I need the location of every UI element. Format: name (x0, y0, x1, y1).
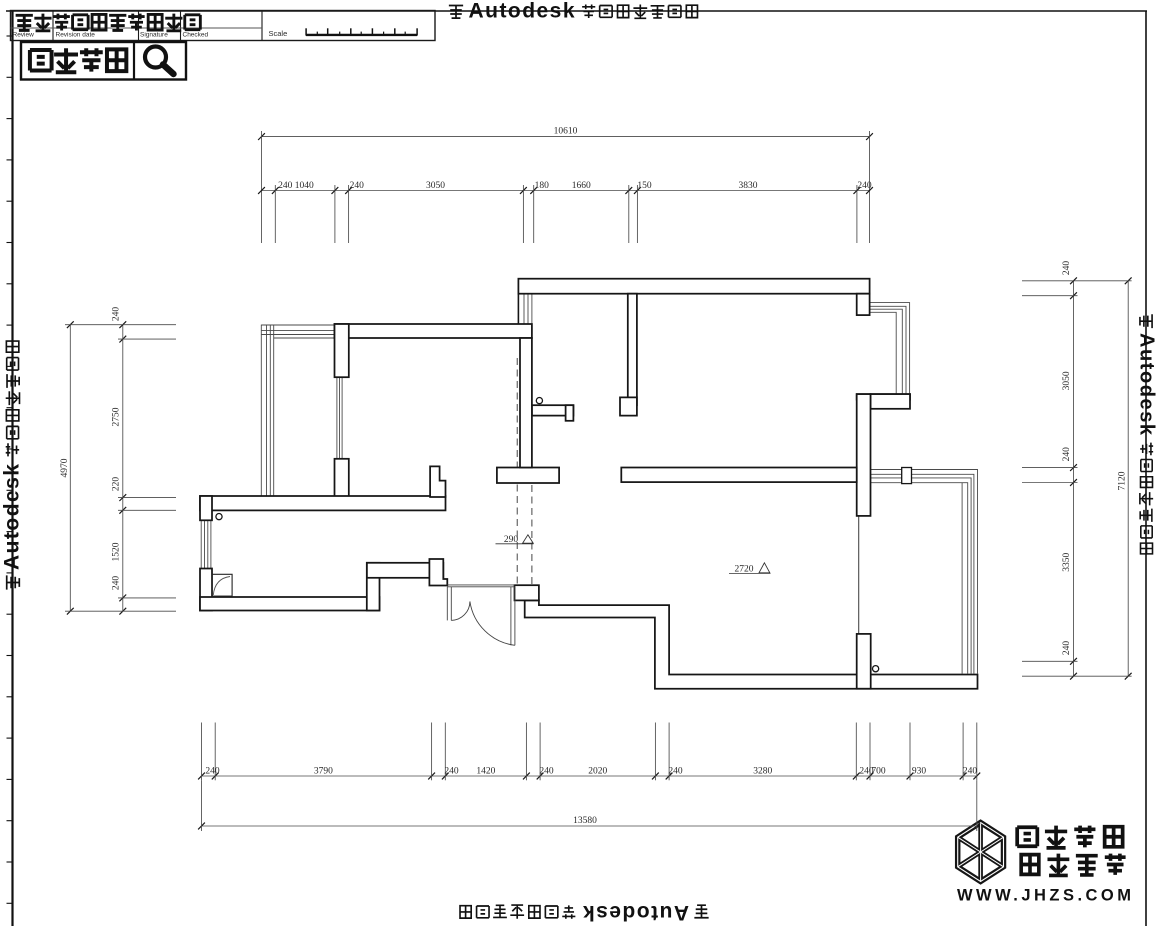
svg-text:240: 240 (444, 767, 459, 777)
svg-text:240: 240 (963, 767, 978, 777)
svg-text:10610: 10610 (554, 127, 578, 137)
svg-text:3790: 3790 (314, 767, 333, 777)
svg-text:Autodesk: Autodesk (1136, 333, 1158, 436)
svg-text:290: 290 (504, 535, 519, 545)
svg-text:240: 240 (111, 307, 121, 322)
svg-text:220: 220 (111, 477, 121, 492)
svg-text:930: 930 (912, 767, 927, 777)
svg-text:WWW.JHZS.COM: WWW.JHZS.COM (957, 887, 1133, 905)
svg-text:150: 150 (637, 181, 652, 191)
svg-text:240: 240 (1062, 641, 1072, 656)
svg-text:240: 240 (857, 181, 872, 191)
svg-text:4970: 4970 (60, 458, 70, 477)
svg-text:240: 240 (278, 181, 293, 191)
svg-text:2750: 2750 (111, 407, 121, 426)
svg-text:1660: 1660 (572, 181, 591, 191)
svg-text:Checked: Checked (183, 32, 209, 39)
svg-text:13580: 13580 (573, 816, 597, 826)
svg-text:7120: 7120 (1118, 471, 1128, 490)
svg-text:3830: 3830 (739, 181, 758, 191)
svg-text:Autodesk: Autodesk (469, 0, 575, 22)
svg-text:Signature: Signature (140, 32, 168, 39)
svg-text:180: 180 (535, 181, 550, 191)
svg-text:2720: 2720 (735, 565, 754, 575)
svg-text:240: 240 (205, 767, 220, 777)
svg-text:240: 240 (111, 576, 121, 591)
svg-text:3350: 3350 (1062, 552, 1072, 571)
svg-text:240: 240 (539, 767, 554, 777)
svg-text:240: 240 (350, 181, 365, 191)
svg-text:1420: 1420 (476, 767, 495, 777)
svg-text:3050: 3050 (426, 181, 445, 191)
svg-text:3280: 3280 (753, 767, 772, 777)
svg-text:240: 240 (668, 767, 683, 777)
svg-text:240: 240 (1062, 261, 1072, 276)
svg-text:2020: 2020 (588, 767, 607, 777)
svg-text:240: 240 (1062, 447, 1072, 462)
svg-text:Autodesk: Autodesk (1, 464, 24, 570)
svg-text:Revision date: Revision date (56, 32, 96, 39)
svg-text:1040: 1040 (295, 181, 314, 191)
svg-text:1520: 1520 (111, 542, 121, 561)
svg-text:Autodesk: Autodesk (583, 901, 689, 924)
svg-text:700: 700 (871, 767, 886, 777)
svg-text:3050: 3050 (1062, 371, 1072, 390)
svg-text:Review: Review (13, 32, 35, 39)
svg-text:Scale: Scale (269, 29, 288, 38)
